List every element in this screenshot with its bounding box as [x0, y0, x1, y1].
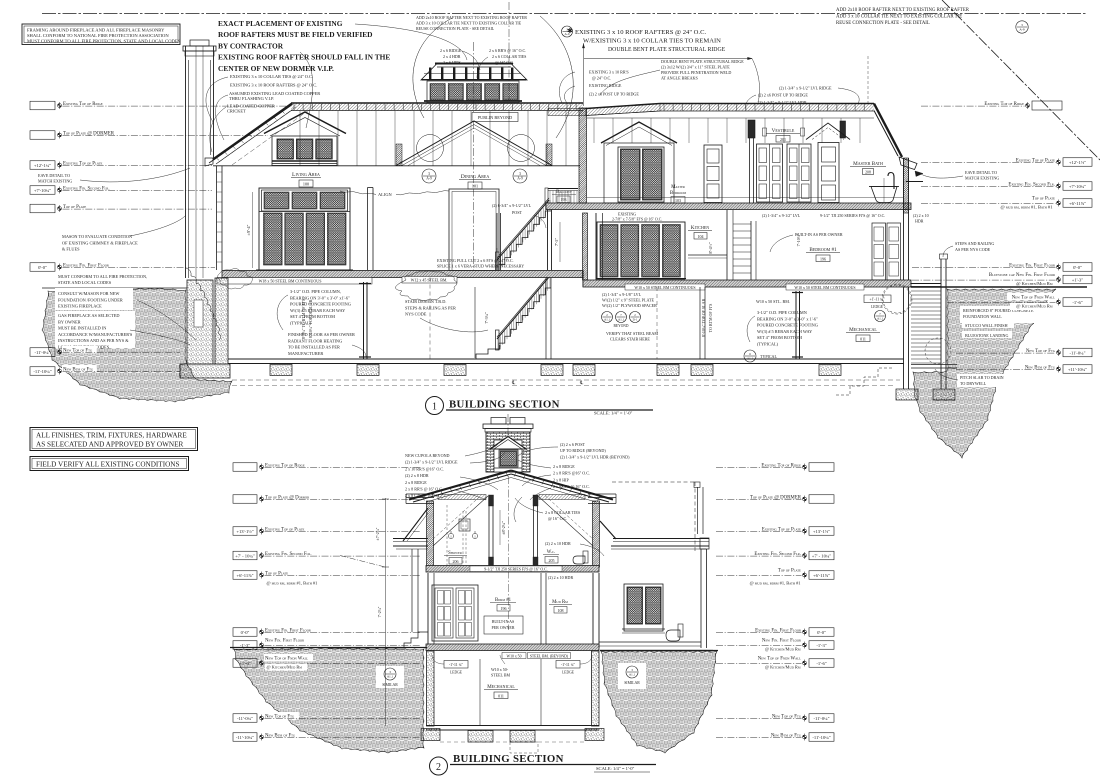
svg-text:Existing Top of Ridge: Existing Top of Ridge — [63, 102, 103, 107]
svg-text:-1'-6": -1'-6" — [816, 661, 826, 666]
svg-text:2 x 6 HIPS: 2 x 6 HIPS — [443, 60, 461, 65]
svg-text:2 x 8 CJ'S @ 16" O.C.: 2 x 8 CJ'S @ 16" O.C. — [553, 484, 590, 489]
svg-text:196: 196 — [820, 256, 826, 261]
svg-text:+13'-1½": +13'-1½" — [813, 529, 830, 534]
svg-text:PITCH SLAB TO DRAIN: PITCH SLAB TO DRAIN — [960, 375, 1004, 380]
svg-text:(2) 6-3/4" x 9-1/2" LVL: (2) 6-3/4" x 9-1/2" LVL — [492, 203, 532, 208]
svg-text:101: 101 — [472, 183, 478, 188]
svg-text:W/(2) 1/2" PLYWOOD SPACER: W/(2) 1/2" PLYWOOD SPACER — [602, 303, 657, 308]
svg-text:193: 193 — [561, 197, 567, 202]
svg-text:@ Kitchen/Mud Rm: @ Kitchen/Mud Rm — [765, 665, 801, 670]
svg-text:±8'-2¾": ±8'-2¾" — [501, 521, 506, 535]
svg-text:@ Kitchen/Mud Rm: @ Kitchen/Mud Rm — [1016, 281, 1053, 286]
svg-text:-11'-0¼": -11'-0¼" — [35, 350, 51, 355]
svg-text:1: 1 — [450, 535, 452, 539]
svg-text:W10 x 50 STEEL BM CONTINUOUS: W10 x 50 STEEL BM CONTINUOUS — [634, 286, 695, 290]
svg-text:CLEARS STAIR HERE: CLEARS STAIR HERE — [610, 337, 650, 342]
svg-text:Existing Top of Ridge: Existing Top of Ridge — [984, 102, 1024, 107]
svg-text:Existing Fin. Second Flr.: Existing Fin. Second Flr. — [265, 552, 312, 557]
svg-text:@ Kitchen/Mud Rm: @ Kitchen/Mud Rm — [267, 647, 303, 652]
svg-text:W10 x 50: W10 x 50 — [507, 654, 522, 658]
svg-text:3: 3 — [1021, 23, 1023, 27]
svg-text:Top of Plate @ DORMER: Top of Plate @ DORMER — [750, 495, 802, 500]
svg-text:A1.1: A1.1 — [629, 673, 636, 677]
svg-text:ADD 3 x 10 COLLAR TIE NEXT TO: ADD 3 x 10 COLLAR TIE NEXT TO EXISTING C… — [836, 15, 962, 20]
svg-text:W10 x 50-: W10 x 50- — [491, 667, 509, 672]
svg-text:+7' - 10¼": +7' - 10¼" — [812, 553, 832, 558]
svg-text:-11'-10¼": -11'-10¼" — [33, 369, 51, 374]
svg-text:W12 x 45 STEEL BM.: W12 x 45 STEEL BM. — [411, 278, 448, 283]
svg-text:A1.1: A1.1 — [618, 318, 624, 322]
svg-text:EXISTING FIREPLACE: EXISTING FIREPLACE — [58, 304, 102, 309]
svg-text:2 x 4 HDR: 2 x 4 HDR — [443, 54, 461, 59]
svg-text:Existing Top of Plate: Existing Top of Plate — [762, 527, 801, 532]
svg-text:AT ANGLE BREAKS: AT ANGLE BREAKS — [661, 76, 698, 81]
svg-text:W/EXISTING 3 x 10 COLLAR TIES: W/EXISTING 3 x 10 COLLAR TIES TO REMAIN — [583, 38, 721, 45]
svg-text:2 x 8 RIDGE: 2 x 8 RIDGE — [553, 464, 575, 469]
svg-text:ADD 2x10 ROOF RAFTER NEXT TO E: ADD 2x10 ROOF RAFTER NEXT TO EXISTING RO… — [836, 8, 970, 13]
svg-text:SPLICE 1 x 6 VERA-STUD WHERE N: SPLICE 1 x 6 VERA-STUD WHERE NECESSARY — [437, 264, 524, 269]
svg-text:±9'-4": ±9'-4" — [246, 224, 251, 235]
svg-text:New Btm of Ftg: New Btm of Ftg — [265, 733, 296, 738]
svg-text:Existing Top of Plate: Existing Top of Plate — [1016, 158, 1055, 163]
svg-text:0'-0": 0'-0" — [241, 630, 250, 635]
svg-text:9-1/2" TJI 250 SERIES FJ'S @ 1: 9-1/2" TJI 250 SERIES FJ'S @ 16" O.C. — [484, 568, 548, 572]
svg-text:201: 201 — [780, 137, 786, 142]
svg-text:@ 16" O.C.: @ 16" O.C. — [495, 60, 514, 65]
svg-text:@ Kitchen/Mud Rm: @ Kitchen/Mud Rm — [765, 647, 801, 652]
svg-text:(2) 2 x 6 POST: (2) 2 x 6 POST — [560, 442, 586, 447]
svg-text:DOUBLE BENT PLATE STRUCTURAL R: DOUBLE BENT PLATE STRUCTURAL RIDGE — [608, 47, 726, 53]
svg-text:208: 208 — [865, 170, 871, 174]
svg-text:-1'-11 ¼": -1'-11 ¼" — [449, 663, 464, 667]
svg-text:Mechanical: Mechanical — [849, 327, 877, 333]
svg-text:-11'-0¼": -11'-0¼" — [1070, 350, 1086, 355]
svg-text:Bedroom: Bedroom — [670, 191, 687, 196]
svg-text:MUST BE INSTALLED IN: MUST BE INSTALLED IN — [58, 326, 106, 331]
svg-text:1: 1 — [474, 535, 476, 539]
svg-text:Existing Fin. First Floor: Existing Fin. First Floor — [755, 628, 801, 633]
svg-text:UP TO RIDGE (BEYOND): UP TO RIDGE (BEYOND) — [560, 448, 606, 453]
svg-text:2 x 10 RR'S @16" O.C.: 2 x 10 RR'S @16" O.C. — [405, 466, 444, 471]
svg-text:ALIGN: ALIGN — [378, 192, 392, 197]
svg-text:MANUFACTURER: MANUFACTURER — [288, 351, 323, 356]
svg-text:+7'-10¼": +7'-10¼" — [1069, 184, 1086, 189]
svg-text:MASON TO EVALUATE CONDITION: MASON TO EVALUATE CONDITION — [62, 234, 132, 239]
svg-text:EAVE DETAIL TO: EAVE DETAIL TO — [38, 173, 70, 178]
svg-text:2 x 6 COLLAR TIES: 2 x 6 COLLAR TIES — [492, 54, 526, 59]
svg-text:Existing Top of Plate: Existing Top of Plate — [63, 161, 102, 166]
svg-text:MATCH EXISTING: MATCH EXISTING — [965, 176, 999, 181]
svg-text:New Top of Ftg: New Top of Ftg — [1026, 349, 1056, 354]
svg-text:2-7/8" x 7-5/8" FJ'S @ 16" O.C: 2-7/8" x 7-5/8" FJ'S @ 16" O.C. — [612, 218, 662, 222]
svg-text:W.c.: W.c. — [547, 550, 556, 555]
svg-text:8'-0¾" TO BTM OF FJ'S: 8'-0¾" TO BTM OF FJ'S — [301, 299, 306, 339]
svg-text:EXISTING 3 x 10 ROOF RAFTERS @: EXISTING 3 x 10 ROOF RAFTERS @ 24" O.C. — [575, 29, 706, 36]
svg-text:MATCH EXISTING: MATCH EXISTING — [38, 179, 72, 184]
svg-text:-11'-0¼": -11'-0¼" — [237, 716, 253, 721]
svg-text:+6'-11⅞": +6'-11⅞" — [237, 573, 254, 578]
svg-text:TO DRYWELL: TO DRYWELL — [960, 381, 987, 386]
svg-text:FINISHED FLOOR AS PER OWNER: FINISHED FLOOR AS PER OWNER — [288, 332, 355, 337]
svg-text:Bluestone cap New Fin. First F: Bluestone cap New Fin. First Floor — [989, 273, 1055, 278]
svg-text:(2) 2 x6 POST UP TO RIDGE: (2) 2 x6 POST UP TO RIDGE — [758, 93, 808, 98]
svg-text:CONSULT W/MASON FOR NEW: CONSULT W/MASON FOR NEW — [58, 291, 120, 296]
svg-text:@ Kitchen/Mud Rm: @ Kitchen/Mud Rm — [267, 665, 303, 670]
svg-text:AS SELECATED AND APPROVED BY O: AS SELECATED AND APPROVED BY OWNER — [36, 441, 183, 449]
svg-text:9-1/2" TJI 250 SERIES FJ'S @ 1: 9-1/2" TJI 250 SERIES FJ'S @ 16" O.C. — [820, 213, 885, 218]
svg-text:108: 108 — [558, 608, 564, 613]
svg-text:7'-2¾": 7'-2¾" — [377, 606, 382, 617]
svg-text:Top of Plate: Top of Plate — [265, 571, 288, 576]
svg-text:New Fin. First Floor: New Fin. First Floor — [762, 638, 801, 643]
svg-text:W/(3) # 5 REBAR EACH WAY: W/(3) # 5 REBAR EACH WAY — [757, 329, 812, 334]
svg-text:206: 206 — [453, 559, 459, 564]
svg-text:7'-10¾": 7'-10¾" — [796, 233, 801, 246]
svg-text:A1.1: A1.1 — [877, 317, 883, 321]
svg-text:(2) 1-3/4" x 9-1/2" LVL: (2) 1-3/4" x 9-1/2" LVL — [762, 213, 801, 218]
svg-text:AS PER NYS CODE: AS PER NYS CODE — [955, 247, 991, 252]
svg-text:(2) 1-3/4" x 9-1/2" LVL HDR (B: (2) 1-3/4" x 9-1/2" LVL HDR (BEYOND) — [560, 455, 630, 460]
svg-text:ROOF RAFTERS MUST BE FIELD VER: ROOF RAFTERS MUST BE FIELD VERIFIED — [218, 30, 372, 39]
svg-text:CENTER OF NEW DORMER V.I.P.: CENTER OF NEW DORMER V.I.P. — [218, 64, 334, 73]
svg-text:PER OWNER: PER OWNER — [492, 625, 515, 630]
svg-text:FOUNDATION /FOOTING UNDER: FOUNDATION /FOOTING UNDER — [58, 297, 123, 302]
svg-text:+13'-1½": +13'-1½" — [236, 529, 253, 534]
svg-text:BEARING ON 3'-0" x 3'-0" x 1'-: BEARING ON 3'-0" x 3'-0" x 1'-6" — [757, 316, 818, 321]
svg-text:BUILDING SECTION: BUILDING SECTION — [453, 753, 564, 765]
svg-text:011: 011 — [860, 336, 866, 341]
svg-text:-1'-6": -1'-6" — [1072, 300, 1082, 305]
svg-text:1: 1 — [432, 402, 437, 413]
svg-text:2 x 8 RR'S @16" O.C.: 2 x 8 RR'S @16" O.C. — [553, 471, 590, 476]
svg-text:POURED CONCRETE FOOTING: POURED CONCRETE FOOTING — [757, 323, 818, 328]
svg-text:+1'-6": +1'-6" — [239, 661, 251, 666]
svg-text:Living Area: Living Area — [292, 172, 320, 178]
svg-text:GAS FIREPLACE AS SELECTED: GAS FIREPLACE AS SELECTED — [58, 313, 119, 318]
svg-text:Existing Fin. First Floor: Existing Fin. First Floor — [265, 628, 311, 633]
svg-text:New Top of Ftg: New Top of Ftg — [63, 348, 93, 353]
svg-text:2 x 6 RR'S @ 16" O.C.: 2 x 6 RR'S @ 16" O.C. — [489, 48, 526, 53]
svg-text:Existing Fin. Second Flr.: Existing Fin. Second Flr. — [754, 552, 801, 557]
svg-text:EXISTING ROOF RAFTER SHOULD FA: EXISTING ROOF RAFTER SHOULD FALL IN THE — [218, 53, 390, 62]
svg-text:DOUBLE BENT PLATE STRUCTURAL R: DOUBLE BENT PLATE STRUCTURAL RIDGE — [661, 59, 744, 64]
svg-text:EXISTING: EXISTING — [618, 213, 636, 217]
svg-text:ADD 2x10 ROOF RAFTER NEXT TO E: ADD 2x10 ROOF RAFTER NEXT TO EXISTING RO… — [416, 15, 527, 20]
svg-text:W10 x 50 STL. BM.: W10 x 50 STL. BM. — [756, 299, 790, 304]
svg-text:Vestibule: Vestibule — [772, 128, 795, 134]
svg-text:RADIANT FLOOR HEATING: RADIANT FLOOR HEATING — [288, 338, 342, 343]
svg-text:EXISTING 3 x 10 ROOF RAFTERS: EXISTING 3 x 10 ROOF RAFTERS @ 24" O.C. — [230, 83, 317, 88]
svg-text:New Top of Fndn Wall: New Top of Fndn Wall — [758, 656, 801, 661]
svg-text:+7' - 10¼": +7' - 10¼" — [235, 553, 255, 558]
svg-text:Existing Top of Ridge: Existing Top of Ridge — [265, 463, 305, 468]
svg-text:STATE AND LOCAL CODES: STATE AND LOCAL CODES — [58, 280, 112, 285]
svg-text:±7'-2¾": ±7'-2¾" — [375, 527, 380, 540]
svg-text:205: 205 — [549, 558, 555, 563]
svg-text:LEDGE: LEDGE — [562, 671, 575, 675]
svg-text:(2) 2 x6 POST UP TO RIDGE: (2) 2 x6 POST UP TO RIDGE — [589, 92, 639, 97]
svg-text:(2) 3x12 W/(2) 3/4" x 11" STEE: (2) 3x12 W/(2) 3/4" x 11" STEEL PLATE — [661, 65, 730, 70]
svg-text:EAVE DETAIL TO: EAVE DETAIL TO — [965, 170, 997, 175]
svg-text:INSTRUCTIONS AND AS PER NYS &: INSTRUCTIONS AND AS PER NYS & — [58, 338, 129, 343]
svg-text:A-9: A-9 — [517, 177, 523, 181]
svg-text:Top of Plate @ DORMER: Top of Plate @ DORMER — [63, 131, 115, 136]
svg-text:+12'-1½": +12'-1½" — [1069, 160, 1086, 165]
svg-text:3: 3 — [519, 172, 521, 176]
svg-text:W/(3) # 5 REBAR EACH WAY: W/(3) # 5 REBAR EACH WAY — [290, 308, 345, 313]
svg-text:NEW CUPOLA BEYOND: NEW CUPOLA BEYOND — [405, 453, 450, 458]
svg-text:2: 2 — [436, 762, 441, 773]
svg-text:Kitchen: Kitchen — [691, 225, 710, 231]
svg-text:LEDGE: LEDGE — [871, 305, 884, 309]
svg-text:SET 4" FROM BOTTOM: SET 4" FROM BOTTOM — [757, 335, 802, 340]
svg-text:+6'-11⅞": +6'-11⅞" — [813, 573, 830, 578]
svg-text:Top of Plate @ Dormer: Top of Plate @ Dormer — [265, 495, 309, 500]
svg-text:196: 196 — [501, 606, 507, 611]
svg-text:0'-0": 0'-0" — [38, 265, 47, 270]
svg-text:(TYPICAL): (TYPICAL) — [757, 342, 779, 347]
svg-text:-1'-11 ¼": -1'-11 ¼" — [561, 663, 576, 667]
svg-text:OF EXISTING CHIMNEY & FIREPLAC: OF EXISTING CHIMNEY & FIREPLACE — [62, 240, 138, 245]
svg-text:PROVIDE FULL PENETRATION WELD: PROVIDE FULL PENETRATION WELD — [661, 70, 731, 75]
svg-text:BY OWNER: BY OWNER — [58, 319, 81, 324]
svg-text:STEPS AND RAILING: STEPS AND RAILING — [955, 241, 994, 246]
svg-text:LEDGE: LEDGE — [450, 671, 463, 675]
svg-text:2 x 8 RR'S @ 16" O.C.: 2 x 8 RR'S @ 16" O.C. — [405, 487, 443, 492]
svg-text:Existing Top of Ridge: Existing Top of Ridge — [761, 463, 801, 468]
svg-text:0'-0": 0'-0" — [1073, 265, 1082, 270]
svg-text:@ 24" O.C.: @ 24" O.C. — [592, 76, 611, 81]
svg-text:2 x 8 CJ'S @ 16" O.C.: 2 x 8 CJ'S @ 16" O.C. — [405, 493, 442, 498]
svg-text:New Btm of Ftg: New Btm of Ftg — [771, 733, 802, 738]
svg-text:New Fin. First Floor: New Fin. First Floor — [265, 638, 304, 643]
svg-text:Existing Fin. Second Flr.: Existing Fin. Second Flr. — [63, 186, 110, 191]
svg-text:A1.1: A1.1 — [387, 675, 394, 679]
svg-text:VERIFY THAT STEEL BEAM: VERIFY THAT STEEL BEAM — [606, 331, 658, 336]
svg-text:(2) 2 x 10: (2) 2 x 10 — [913, 213, 929, 218]
svg-text:@ Kitchen/Mud Rm: @ Kitchen/Mud Rm — [1016, 304, 1053, 309]
svg-text:PURLIN BEYOND: PURLIN BEYOND — [478, 115, 513, 120]
svg-text:+7'-10¼": +7'-10¼" — [34, 188, 51, 193]
svg-text:POST: POST — [512, 210, 523, 215]
svg-text:BLUESTONE LANDING: BLUESTONE LANDING — [965, 333, 1009, 338]
svg-text:Existing Fin. Second Flr.: Existing Fin. Second Flr. — [1008, 182, 1055, 187]
svg-text:8'-4½": 8'-4½" — [708, 242, 713, 253]
svg-text:NYS CODE: NYS CODE — [405, 312, 427, 317]
svg-text:3: 3 — [428, 172, 430, 176]
svg-text:2 x 6 RIDGE: 2 x 6 RIDGE — [440, 48, 462, 53]
svg-text:ADD 3 x 10 COLLAR TIE NEXT TO: ADD 3 x 10 COLLAR TIE NEXT TO EXISTING C… — [416, 21, 522, 26]
svg-text:FIELD VERIFY ALL EXISTING COND: FIELD VERIFY ALL EXISTING CONDITIONS — [36, 461, 179, 469]
svg-text:EXISTING FULL CUT 2 x 6 FJ'S: EXISTING FULL CUT 2 x 6 FJ'S @ 24" O.C. — [437, 258, 514, 263]
svg-text:(2) 1-3/4" x 9-1/2" LVL RIDGE: (2) 1-3/4" x 9-1/2" LVL RIDGE — [405, 460, 458, 465]
svg-text:Balcony: Balcony — [556, 190, 573, 195]
svg-text:STEEL BM: STEEL BM — [491, 673, 511, 678]
svg-text:New Btm of Ftg: New Btm of Ftg — [63, 367, 94, 372]
svg-text:3-1/2" O.D. PIPE COLUMN: 3-1/2" O.D. PIPE COLUMN — [757, 310, 807, 315]
svg-text:SHALL CONFORM TO NATIONAL FIRE: SHALL CONFORM TO NATIONAL FIRE PROTECTIO… — [27, 33, 169, 38]
svg-text:& FLUES: & FLUES — [62, 247, 80, 252]
svg-text:BUILT-IN AS: BUILT-IN AS — [492, 619, 515, 624]
svg-text:REUSE CONNECTION PLATE - SEE D: REUSE CONNECTION PLATE - SEE DETAIL — [836, 21, 930, 26]
svg-text:TO BTM OF FJ'S: TO BTM OF FJ'S — [708, 304, 713, 333]
svg-text:✱: ✱ — [567, 27, 573, 35]
svg-text:Existing Fin. First Floor: Existing Fin. First Floor — [63, 263, 109, 268]
svg-text:2 x 8 HIP: 2 x 8 HIP — [553, 477, 570, 482]
svg-text:-11'-0¼": -11'-0¼" — [814, 716, 830, 721]
svg-text:Dining Area: Dining Area — [461, 174, 490, 180]
svg-text:(2) 1-3/4" x 9-1/2" LVL RIDGE: (2) 1-3/4" x 9-1/2" LVL RIDGE — [779, 86, 832, 91]
svg-text:BUILDING SECTION: BUILDING SECTION — [449, 399, 560, 411]
svg-text:FRAMING AROUND FIREPLACE AND A: FRAMING AROUND FIREPLACE AND ALL FIREPLA… — [27, 28, 165, 33]
svg-text:STEPS & RAILING AS PER: STEPS & RAILING AS PER — [405, 305, 456, 310]
svg-text:THRU FLASHING V.I.P.: THRU FLASHING V.I.P. — [229, 96, 274, 101]
svg-text:Top of Plate: Top of Plate — [63, 205, 86, 210]
svg-text:SCALE: 1/4" = 1'-0": SCALE: 1/4" = 1'-0" — [596, 766, 635, 771]
svg-text:(2) 2 x 10 HDR: (2) 2 x 10 HDR — [545, 541, 571, 546]
svg-text:CRICKET: CRICKET — [227, 109, 246, 114]
svg-text:FOUNDATION WALL: FOUNDATION WALL — [963, 314, 1002, 319]
svg-text:@ 16" O.C.: @ 16" O.C. — [548, 516, 567, 521]
svg-text:(2) 1-3/4" x 9-1/8" LVL: (2) 1-3/4" x 9-1/8" LVL — [602, 292, 642, 297]
svg-text:POURED CONCRETE FOOTING: POURED CONCRETE FOOTING — [290, 302, 351, 307]
svg-text:Top of Plate: Top of Plate — [1032, 196, 1055, 201]
svg-text:8'-10¾" TOP OF SLAB: 8'-10¾" TOP OF SLAB — [308, 300, 313, 339]
svg-text:HDR: HDR — [915, 219, 924, 224]
svg-text:7'-5": 7'-5" — [554, 238, 559, 246]
svg-text:New Top of Ftg: New Top of Ftg — [772, 714, 802, 719]
svg-text:7'-3¾": 7'-3¾" — [484, 312, 489, 323]
svg-text:Shower: Shower — [448, 551, 462, 556]
svg-text:EXISTING 3 x 10 COLLAR TIES @: EXISTING 3 x 10 COLLAR TIES @ 24" O.C. — [230, 74, 313, 79]
svg-text:TO BE INSTALLED AS PER: TO BE INSTALLED AS PER — [288, 345, 340, 350]
svg-text:+12'-1¼": +12'-1¼" — [34, 163, 51, 168]
svg-text:EXISTING 3 x 10 RR'S: EXISTING 3 x 10 RR'S — [589, 70, 629, 75]
svg-text:New Top of Fndn Wall: New Top of Fndn Wall — [1012, 295, 1055, 300]
svg-text:100: 100 — [303, 181, 309, 186]
svg-text:Top of Plate: Top of Plate — [778, 568, 801, 573]
svg-text:D-1: D-1 — [633, 318, 638, 322]
svg-text:EXACT PLACEMENT OF EXISTING: EXACT PLACEMENT OF EXISTING — [218, 19, 343, 28]
svg-text:-1'-3": -1'-3" — [816, 643, 826, 648]
svg-text:104: 104 — [698, 234, 704, 239]
svg-text:BEYOND: BEYOND — [614, 324, 629, 328]
svg-text:A-9: A-9 — [426, 177, 432, 181]
svg-text:W10 x 50 STEEL BM CONTINUOUS: W10 x 50 STEEL BM CONTINUOUS — [794, 286, 855, 290]
svg-text:+1'-3": +1'-3" — [1072, 277, 1084, 282]
svg-text:A1.1: A1.1 — [604, 318, 610, 322]
svg-text:Master Bath: Master Bath — [853, 161, 883, 167]
svg-text:BEARING ON 3'-0" x 3'-0" x1'-6: BEARING ON 3'-0" x 3'-0" x1'-6" — [290, 295, 350, 300]
svg-text:-1'-3": -1'-3" — [240, 643, 250, 648]
svg-text:2 x 8 COLLAR TIES: 2 x 8 COLLAR TIES — [545, 510, 581, 515]
svg-text:STAIR DESIGN T.B.D.: STAIR DESIGN T.B.D. — [405, 299, 446, 304]
svg-text:SIMILAR: SIMILAR — [382, 683, 398, 687]
svg-text:W18 x 50 STEEL BM CONTINUOUS: W18 x 50 STEEL BM CONTINUOUS — [259, 279, 322, 284]
svg-text:Master: Master — [671, 185, 685, 190]
svg-text:EXISTING RIDGE: EXISTING RIDGE — [589, 83, 622, 88]
svg-text:ACCORDANCE W/MANUFACTURER'S: ACCORDANCE W/MANUFACTURER'S — [58, 332, 133, 337]
svg-text:Mud Rm: Mud Rm — [552, 600, 568, 605]
svg-text:TYPICAL: TYPICAL — [760, 354, 777, 359]
svg-text:W/(2) 1/2" x 9" STEEL PLATE: W/(2) 1/2" x 9" STEEL PLATE — [602, 298, 654, 303]
svg-text:ALL FINISHES, TRIM, FIXTURES,: ALL FINISHES, TRIM, FIXTURES, HARDWARE — [36, 432, 187, 440]
svg-text:011: 011 — [498, 693, 504, 698]
svg-text:Existing Top of Plate: Existing Top of Plate — [265, 527, 304, 532]
svg-text:New Top of Ftg: New Top of Ftg — [265, 714, 295, 719]
svg-text:SIMILAR: SIMILAR — [624, 681, 640, 685]
svg-text:Bdrm #1: Bdrm #1 — [495, 598, 512, 603]
svg-text:0'-0": 0'-0" — [817, 630, 826, 635]
svg-text:2 x 8 RIDGE: 2 x 8 RIDGE — [405, 480, 427, 485]
svg-text:A1.1: A1.1 — [747, 357, 754, 361]
svg-text:New Btm of Ftg: New Btm of Ftg — [1025, 365, 1056, 370]
svg-text:REUSE CONNECTION PLATE - SEE D: REUSE CONNECTION PLATE - SEE DETAIL — [416, 26, 495, 31]
svg-text:(2) 2 x 8 HDR: (2) 2 x 8 HDR — [405, 473, 429, 478]
svg-text:103: 103 — [675, 198, 681, 203]
svg-text:BY CONTRACTOR: BY CONTRACTOR — [218, 41, 284, 50]
svg-text:-11'-10¼": -11'-10¼" — [812, 735, 830, 740]
svg-text:+11'-10¼": +11'-10¼" — [1068, 367, 1087, 372]
svg-text:+6'-11⅞": +6'-11⅞" — [1069, 201, 1086, 206]
svg-text:BUILT-IN AS PER OWNER: BUILT-IN AS PER OWNER — [795, 232, 843, 237]
svg-text:A-9: A-9 — [1019, 28, 1025, 32]
svg-text:Bedroom #1: Bedroom #1 — [809, 247, 837, 253]
svg-text:New Top of Fndn Wall: New Top of Fndn Wall — [265, 656, 308, 661]
svg-text:STEEL BM. (BEYOND): STEEL BM. (BEYOND) — [530, 654, 569, 658]
svg-text:+1'-11 ¼": +1'-11 ¼" — [870, 298, 885, 302]
svg-text:Existing Fin. First Floor: Existing Fin. First Floor — [1009, 263, 1055, 268]
svg-text:STUCCO WALL FINISH: STUCCO WALL FINISH — [965, 323, 1008, 328]
svg-text:SCALE: 1/4" = 1'-0": SCALE: 1/4" = 1'-0" — [594, 411, 633, 416]
svg-text:-11'-10¼": -11'-10¼" — [236, 735, 254, 740]
svg-text:(2) 2 x 10 HDR: (2) 2 x 10 HDR — [548, 575, 573, 580]
